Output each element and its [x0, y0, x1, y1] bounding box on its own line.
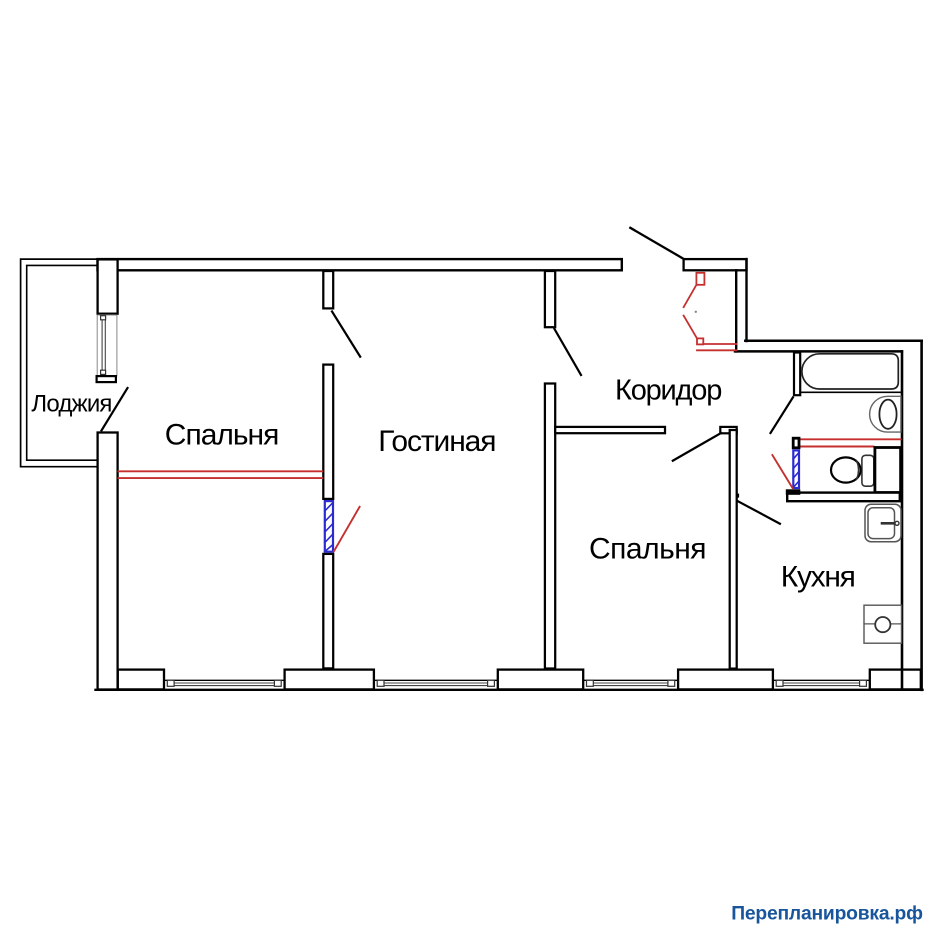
svg-text:Коридор: Коридор — [615, 374, 721, 406]
svg-text:Спальня: Спальня — [589, 533, 706, 566]
svg-text:Гостиная: Гостиная — [378, 425, 495, 458]
svg-text:Кухня: Кухня — [781, 560, 855, 593]
svg-text:Лоджия: Лоджия — [31, 391, 111, 418]
svg-text:Перепланировка.рф: Перепланировка.рф — [731, 904, 923, 925]
svg-text:Спальня: Спальня — [165, 418, 279, 451]
